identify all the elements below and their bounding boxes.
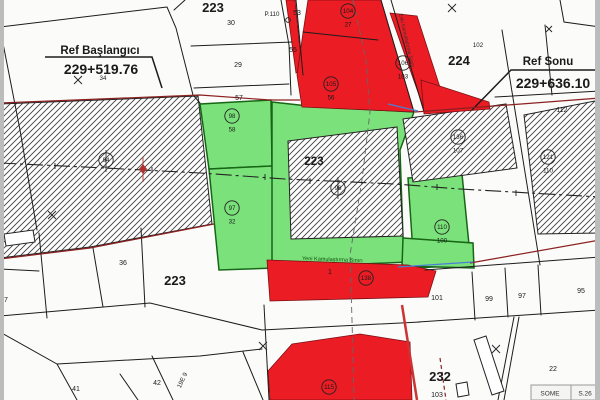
svg-text:106: 106 (398, 60, 409, 67)
parcel-label-99: 99 (485, 296, 493, 303)
svg-text:56: 56 (328, 95, 335, 102)
svg-text:97: 97 (229, 205, 236, 212)
ref-end-label: Ref Sonu (523, 56, 573, 68)
svg-text:32: 32 (229, 219, 236, 226)
parcel-label-97: 97 (518, 293, 526, 300)
green-parcel-97 (209, 166, 274, 270)
svg-text:100: 100 (437, 238, 448, 245)
block-label-223-center: 223 (304, 156, 323, 168)
svg-text:103: 103 (398, 74, 409, 81)
table-cell-1: SOME (540, 391, 560, 398)
hatched-parcel-121 (524, 100, 600, 234)
parcel-label-30: 30 (227, 20, 235, 27)
map-canvas: 94 96 9858 9732 10427 10556 106103 11010… (0, 0, 600, 400)
svg-text:107: 107 (453, 148, 464, 155)
table-cell-2: S.26 (578, 391, 592, 398)
svg-text:115: 115 (324, 384, 334, 391)
block-label-224: 224 (448, 53, 470, 68)
svg-text:138: 138 (361, 275, 372, 282)
svg-text:94: 94 (103, 157, 110, 164)
svg-text:58: 58 (229, 127, 236, 134)
hatched-parcel-center-223 (288, 127, 403, 239)
svg-text:105: 105 (326, 81, 337, 88)
ref-start-label: Ref Başlangıcı (60, 45, 139, 57)
block-label-232: 232 (429, 369, 451, 384)
parcel-label-102: 102 (473, 42, 484, 49)
parcel-label-53: 53 (293, 10, 301, 17)
building-small (456, 382, 469, 397)
parcel-label-42: 42 (153, 380, 161, 387)
parcel-label-1: 1 (328, 269, 332, 276)
svg-text:110: 110 (543, 168, 553, 175)
ref-end-value: 229+636.10 (516, 75, 591, 91)
parcel-label-7: 7 (4, 297, 8, 304)
parcel-label-57: 57 (235, 95, 243, 102)
parcel-label-95: 95 (577, 288, 585, 295)
svg-text:27: 27 (345, 22, 352, 29)
parcel-label-29: 29 (234, 62, 242, 69)
parcel-label-101: 101 (431, 295, 443, 302)
letterbox-left (0, 0, 4, 400)
svg-text:121: 121 (543, 154, 554, 161)
svg-text:110: 110 (437, 224, 447, 231)
block-label-223-top-left: 223 (202, 0, 224, 15)
expropriation-plan-map: 94 96 9858 9732 10427 10556 106103 11010… (0, 0, 600, 400)
ref-start-value: 229+519.76 (64, 61, 139, 77)
parcel-label-41: 41 (72, 386, 80, 393)
parcel-label-103: 103 (431, 392, 443, 399)
parcel-label-22: 22 (549, 366, 557, 373)
parcel-label-36: 36 (119, 260, 127, 267)
parcel-label-55: 55 (289, 47, 297, 54)
svg-text:104: 104 (343, 8, 354, 15)
svg-text:96: 96 (335, 185, 342, 192)
block-label-223-bottom: 223 (164, 273, 186, 288)
letterbox-right (595, 0, 600, 400)
parcel-label-112: 112 (556, 107, 567, 114)
point-label-p110: P.110 (265, 11, 280, 18)
svg-text:136: 136 (453, 134, 464, 141)
title-block-table: SOME S.26 (531, 385, 600, 400)
svg-text:98: 98 (229, 113, 236, 120)
